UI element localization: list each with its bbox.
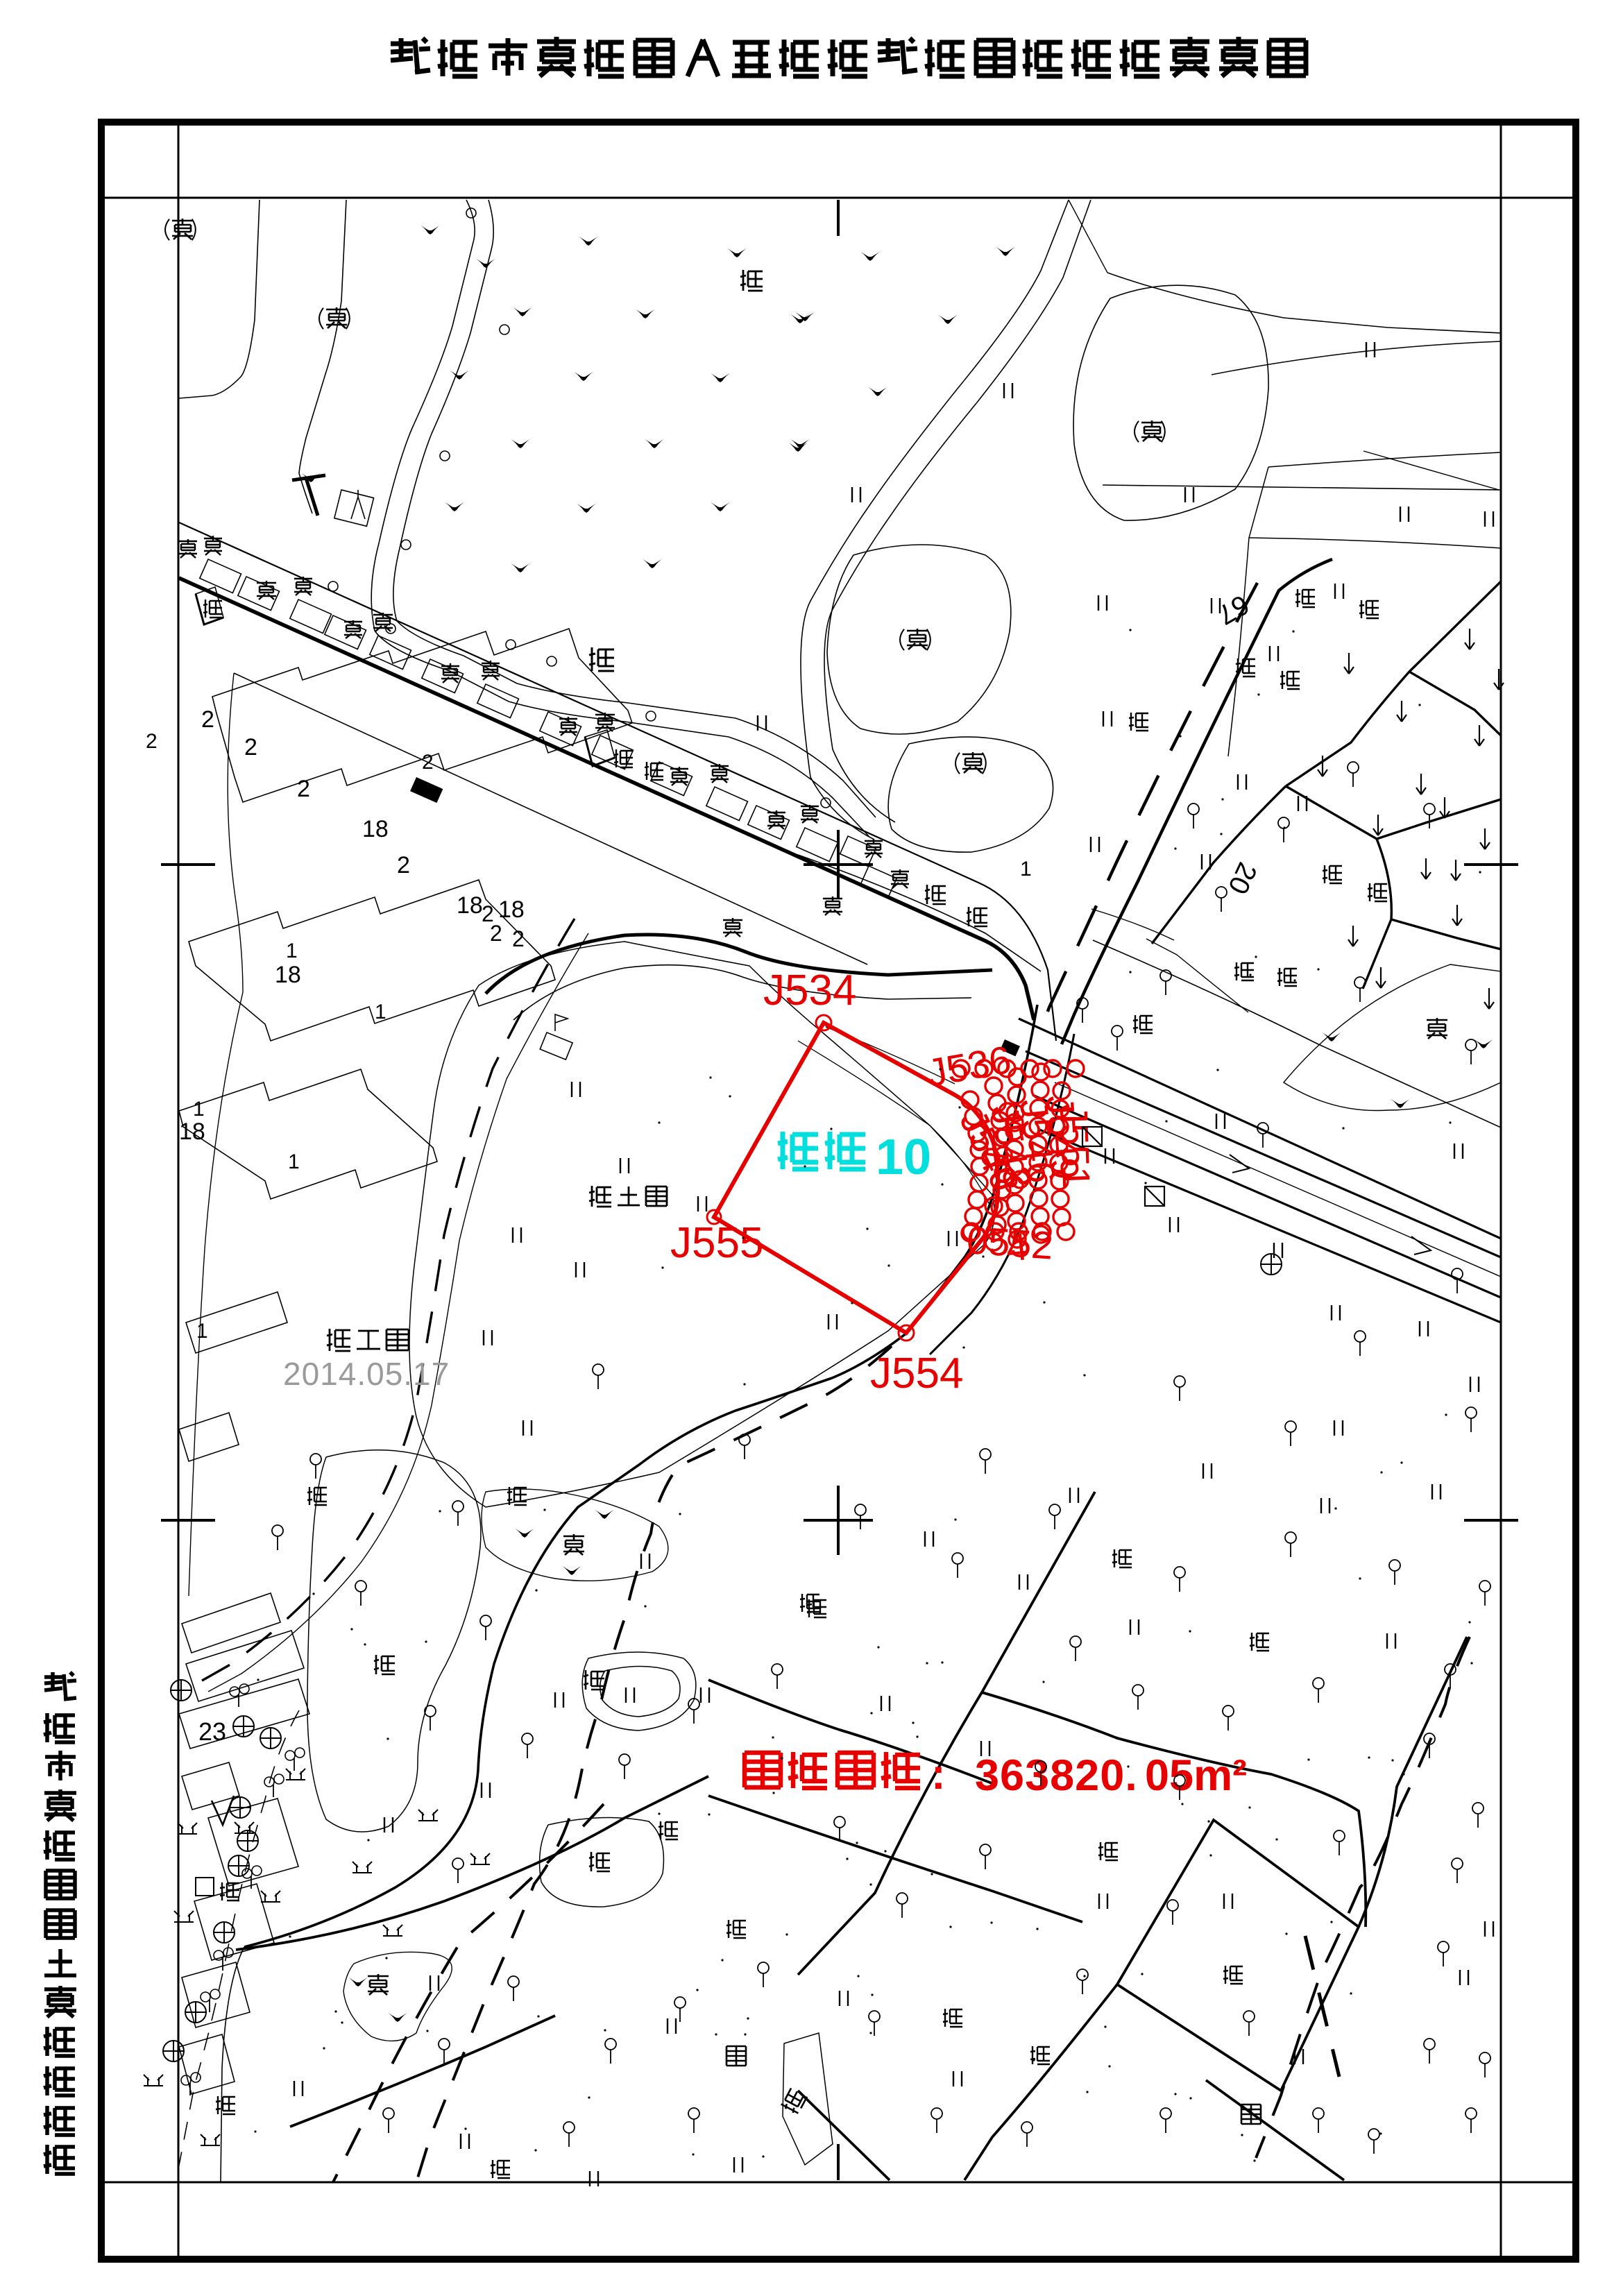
svg-text:2: 2 xyxy=(297,776,310,802)
svg-text:10: 10 xyxy=(876,1130,931,1185)
svg-text:1: 1 xyxy=(288,1150,300,1173)
svg-text:1: 1 xyxy=(193,1098,205,1121)
svg-text:2: 2 xyxy=(244,734,257,760)
svg-text:4: 4 xyxy=(1004,1224,1030,1270)
svg-text:18: 18 xyxy=(362,816,389,842)
svg-text:1: 1 xyxy=(196,1320,208,1343)
svg-text:J555: J555 xyxy=(670,1219,763,1267)
svg-text:2: 2 xyxy=(490,921,502,946)
svg-text:J534: J534 xyxy=(763,967,856,1014)
svg-text::: : xyxy=(931,1751,946,1798)
svg-text:1: 1 xyxy=(375,1001,386,1023)
svg-text:18: 18 xyxy=(179,1119,205,1145)
svg-text:2: 2 xyxy=(422,751,434,774)
svg-text:05m²: 05m² xyxy=(1145,1751,1247,1800)
svg-text:2: 2 xyxy=(146,730,158,753)
svg-text:18: 18 xyxy=(275,962,301,988)
svg-text:23: 23 xyxy=(198,1717,226,1746)
svg-text:2: 2 xyxy=(201,706,214,733)
svg-text:2: 2 xyxy=(397,852,410,878)
svg-text:1: 1 xyxy=(286,939,298,962)
svg-text:1: 1 xyxy=(1020,858,1032,881)
svg-text:2014.05.17: 2014.05.17 xyxy=(283,1356,450,1392)
svg-text:18: 18 xyxy=(457,892,483,919)
svg-text:363820.: 363820. xyxy=(975,1751,1138,1800)
svg-text:2: 2 xyxy=(512,926,525,951)
svg-text:18: 18 xyxy=(498,896,525,923)
svg-text:J554: J554 xyxy=(870,1350,963,1397)
